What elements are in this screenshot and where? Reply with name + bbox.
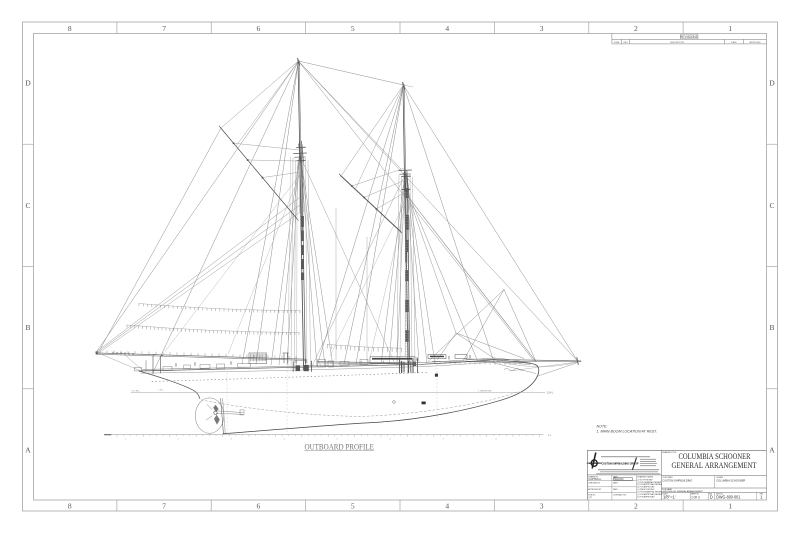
- svg-text:C: C: [769, 201, 774, 210]
- svg-text:1 OF 3: 1 OF 3: [691, 495, 700, 500]
- svg-text:2: 2: [634, 502, 638, 511]
- svg-text:7: 7: [162, 502, 166, 511]
- svg-text:OUTBOARD PROFILE: OUTBOARD PROFILE: [304, 442, 374, 451]
- svg-text:( ) FOR APPROVED: ( ) FOR APPROVED: [637, 495, 655, 498]
- svg-text:A: A: [25, 445, 31, 454]
- svg-text:1. MAIN BOOM LOCATION AT REST.: 1. MAIN BOOM LOCATION AT REST.: [597, 429, 658, 433]
- svg-text:D: D: [25, 79, 31, 88]
- svg-text:C: C: [25, 201, 30, 210]
- svg-text:1: 1: [728, 24, 732, 33]
- svg-text:3: 3: [540, 24, 544, 33]
- svg-text:REVISIONS: REVISIONS: [680, 35, 699, 39]
- svg-text:3: 3: [540, 502, 544, 511]
- svg-text:CAPTAIN A.: CAPTAIN A.: [589, 478, 602, 481]
- svg-text:A.P.: A.P.: [548, 434, 552, 437]
- svg-text:5: 5: [351, 502, 355, 511]
- svg-text:DWG-800-001: DWG-800-001: [716, 495, 741, 500]
- svg-text:CUSTOM SHIPBUILDING GROUP: CUSTOM SHIPBUILDING GROUP: [602, 462, 639, 465]
- svg-text:4: 4: [445, 502, 449, 511]
- svg-text:QTY.: QTY.: [588, 497, 592, 499]
- svg-text:DATE: DATE: [613, 488, 618, 491]
- svg-text:GENERAL ARRANGEMENT: GENERAL ARRANGEMENT: [672, 461, 757, 470]
- svg-text:DRAWING STATUS: DRAWING STATUS: [637, 475, 654, 478]
- svg-text:2: 2: [634, 24, 638, 33]
- svg-text:APPROVED: APPROVED: [749, 41, 761, 44]
- svg-text:CHECKED BY: CHECKED BY: [588, 483, 600, 485]
- svg-text:5: 5: [351, 24, 355, 33]
- svg-text:4: 4: [445, 24, 449, 33]
- svg-text:APPROVED BY: APPROVED BY: [588, 488, 602, 491]
- svg-text:CUSTOM SHIPBUILDING: CUSTOM SHIPBUILDING: [662, 478, 692, 482]
- svg-text:8: 8: [68, 502, 72, 511]
- svg-text:8: 8: [68, 24, 72, 33]
- svg-text:D.W.L.: D.W.L.: [547, 392, 554, 394]
- svg-text:L.W.L.: L.W.L.: [159, 389, 165, 391]
- svg-text:D: D: [769, 79, 775, 88]
- svg-text:CONTRACT NO.: CONTRACT NO.: [613, 493, 627, 496]
- svg-text:ZONE: ZONE: [614, 42, 620, 44]
- svg-text:7: 7: [162, 24, 166, 33]
- svg-text:COLUMBIA SCHOONER: COLUMBIA SCHOONER: [679, 452, 751, 461]
- svg-text:DATE: DATE: [613, 482, 618, 485]
- svg-text:1: 1: [728, 502, 732, 511]
- svg-text:B: B: [769, 323, 774, 332]
- svg-text:A: A: [769, 445, 775, 454]
- svg-text:6: 6: [257, 502, 261, 511]
- svg-text:DESCRIPTION: DESCRIPTION: [670, 42, 684, 44]
- svg-text:1' WATERLINE: 1' WATERLINE: [478, 389, 492, 392]
- svg-text:5'-6" W.L.: 5'-6" W.L.: [132, 391, 141, 393]
- svg-text:D: D: [710, 495, 713, 500]
- svg-text:DRAWING TITLE: DRAWING TITLE: [662, 451, 677, 454]
- svg-text:B: B: [25, 323, 30, 332]
- svg-text:5/2/2013: 5/2/2013: [614, 478, 624, 481]
- svg-text:6: 6: [257, 24, 261, 33]
- svg-text:REV: REV: [623, 42, 628, 44]
- svg-text:COLUMBIA SCHOONER: COLUMBIA SCHOONER: [716, 478, 745, 482]
- svg-text:DATE: DATE: [731, 41, 737, 44]
- svg-text:NOTE:: NOTE:: [597, 424, 608, 428]
- svg-text:1/8"=1': 1/8"=1': [663, 495, 676, 500]
